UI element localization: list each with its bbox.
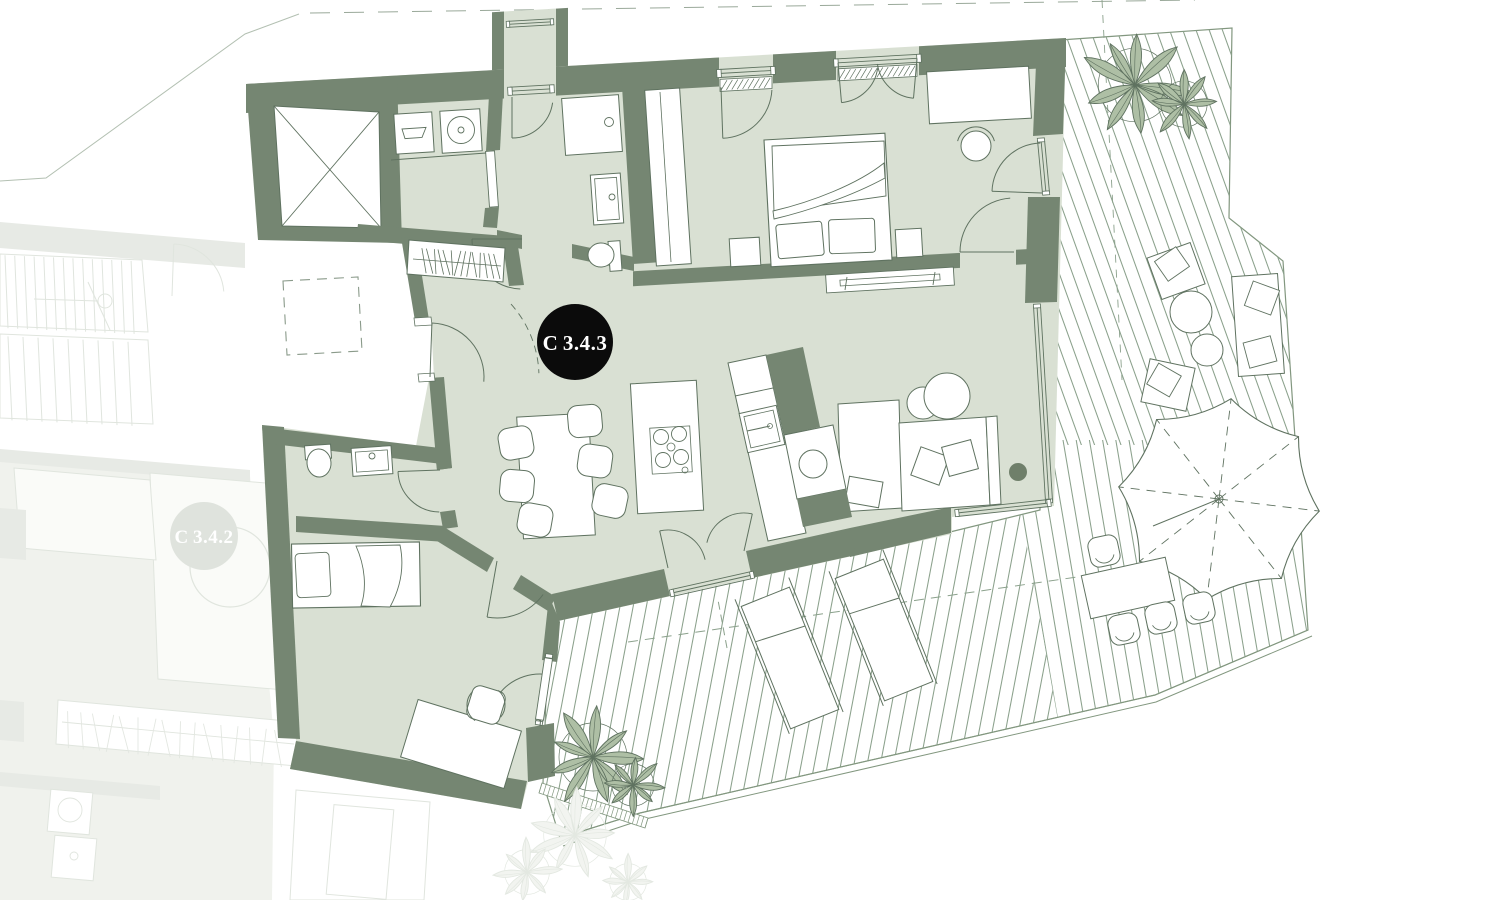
svg-text:C 3.4.3: C 3.4.3	[543, 331, 608, 355]
svg-text:C 3.4.2: C 3.4.2	[174, 527, 233, 548]
